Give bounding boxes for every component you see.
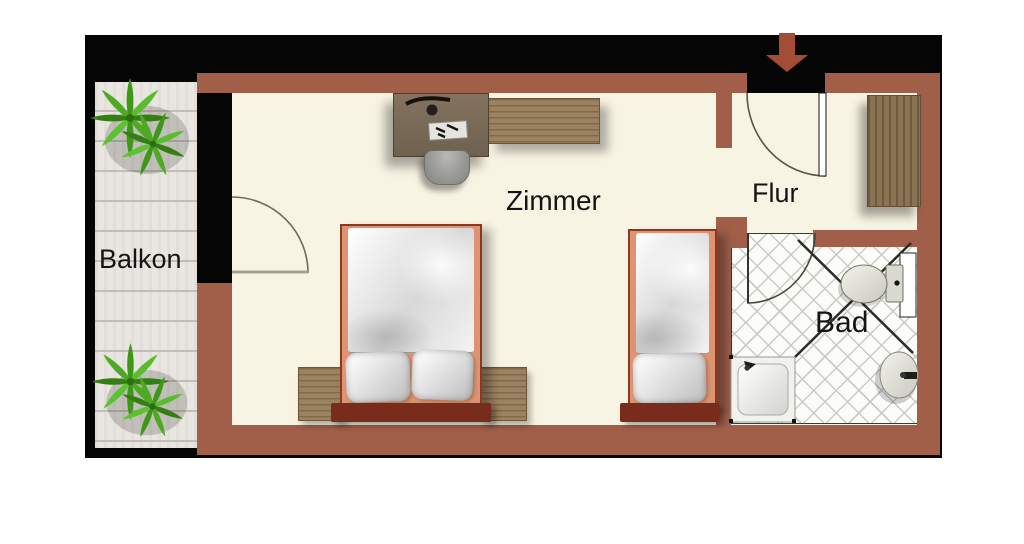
balcony-label: Balkon (99, 244, 182, 275)
wall-left-lower (197, 283, 232, 425)
wall-top-left (197, 73, 747, 93)
desk-chair (424, 150, 470, 185)
hallway-label: Flur (752, 178, 799, 209)
wall-zimmer-flur (716, 93, 732, 148)
dresser (488, 98, 600, 144)
single-bed (628, 229, 717, 409)
bathroom-label: Bad (815, 306, 868, 340)
single-bed-duvet (636, 233, 709, 354)
single-bed-headboard (620, 403, 719, 422)
wall-bad-corner (716, 217, 747, 248)
desk (393, 93, 489, 157)
pillow (411, 349, 474, 401)
floor-plan: Balkon Zimmer Flur Bad (0, 0, 1024, 544)
wardrobe (867, 95, 921, 207)
wall-flur-bad (813, 230, 917, 247)
double-bed-headboard (331, 403, 491, 422)
pillow (345, 351, 411, 403)
pillow (633, 352, 707, 403)
double-bed (340, 224, 482, 409)
room-label: Zimmer (506, 185, 601, 217)
wall-bottom (197, 425, 940, 455)
wall-zimmer-bad (716, 247, 731, 425)
balcony-window-wall (197, 93, 232, 283)
double-bed-duvet (348, 228, 474, 353)
